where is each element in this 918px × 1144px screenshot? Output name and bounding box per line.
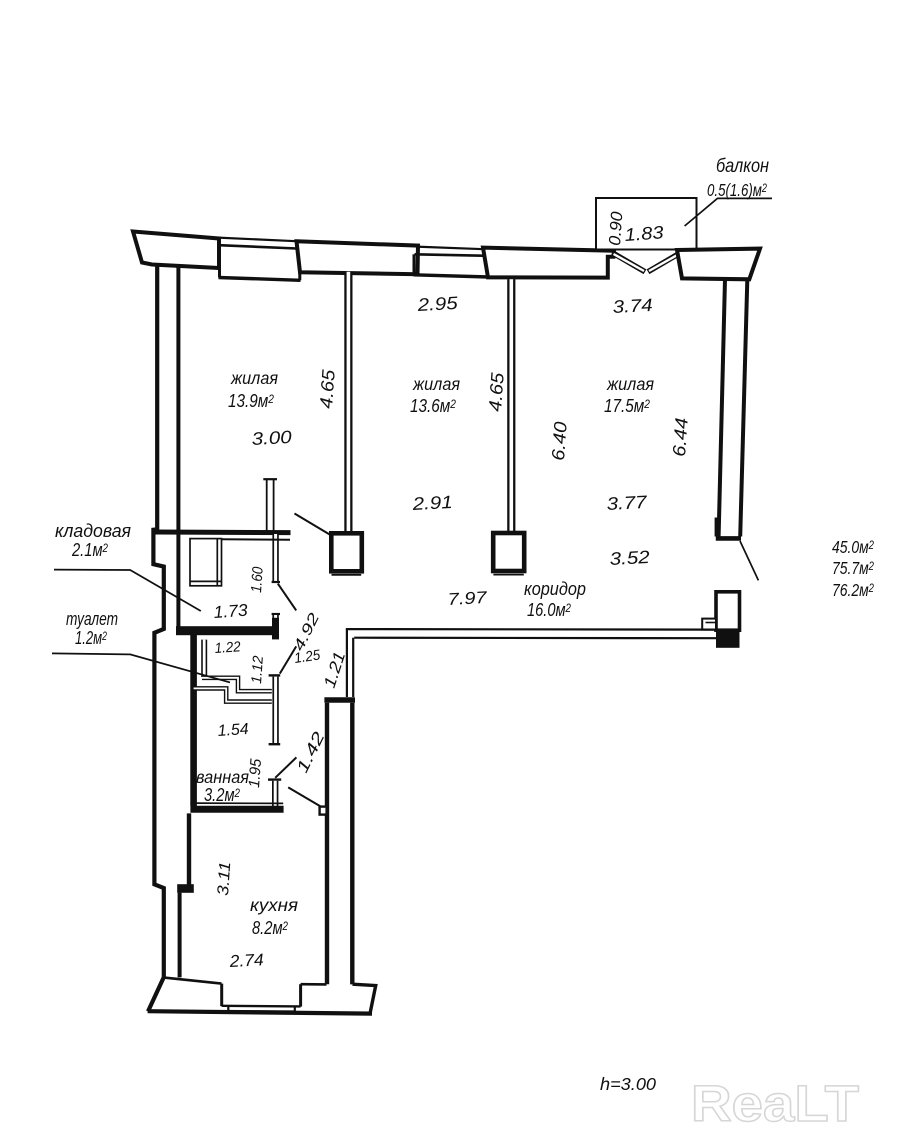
svg-text:1.83: 1.83 — [624, 222, 664, 245]
svg-text:16.0м2: 16.0м2 — [527, 600, 571, 620]
svg-text:жилая: жилая — [230, 368, 278, 388]
svg-text:1.73: 1.73 — [213, 601, 249, 622]
svg-text:76.2м2: 76.2м2 — [832, 580, 874, 600]
svg-text:3.00: 3.00 — [251, 427, 292, 449]
svg-text:45.0м2: 45.0м2 — [832, 537, 874, 557]
svg-text:ванная: ванная — [196, 767, 249, 787]
svg-text:7.97: 7.97 — [447, 588, 488, 609]
svg-text:6.44: 6.44 — [669, 417, 692, 457]
svg-text:4.65: 4.65 — [485, 371, 508, 412]
svg-text:туалет: туалет — [66, 609, 118, 629]
svg-text:2.74: 2.74 — [228, 950, 264, 971]
svg-text:жилая: жилая — [412, 374, 460, 394]
svg-text:6.40: 6.40 — [548, 421, 571, 461]
svg-text:кладовая: кладовая — [55, 521, 131, 541]
svg-text:1.12: 1.12 — [249, 655, 267, 684]
svg-text:3.74: 3.74 — [612, 295, 653, 317]
svg-text:13.9м2: 13.9м2 — [228, 391, 274, 411]
svg-text:0.90: 0.90 — [606, 210, 626, 246]
svg-text:1.60: 1.60 — [248, 566, 267, 594]
svg-text:13.6м2: 13.6м2 — [410, 396, 456, 416]
svg-text:75.7м2: 75.7м2 — [832, 558, 874, 578]
svg-text:4.65: 4.65 — [316, 368, 339, 409]
svg-text:ReaLT: ReaLT — [691, 1075, 859, 1132]
svg-text:коридор: коридор — [524, 579, 586, 599]
svg-text:балкон: балкон — [716, 156, 769, 177]
svg-text:кухня: кухня — [250, 895, 298, 915]
svg-text:1.22: 1.22 — [214, 639, 241, 657]
svg-text:0.5(1.6)м2: 0.5(1.6)м2 — [707, 180, 767, 200]
svg-text:17.5м2: 17.5м2 — [604, 396, 650, 416]
svg-text:3.77: 3.77 — [606, 492, 648, 514]
svg-text:3.52: 3.52 — [609, 547, 650, 569]
svg-text:2.91: 2.91 — [411, 492, 453, 514]
svg-text:3.11: 3.11 — [215, 861, 234, 896]
svg-text:1.54: 1.54 — [217, 721, 249, 740]
svg-text:жилая: жилая — [606, 374, 654, 394]
svg-text:2.95: 2.95 — [416, 293, 459, 315]
svg-text:h=3.00: h=3.00 — [600, 1074, 656, 1094]
